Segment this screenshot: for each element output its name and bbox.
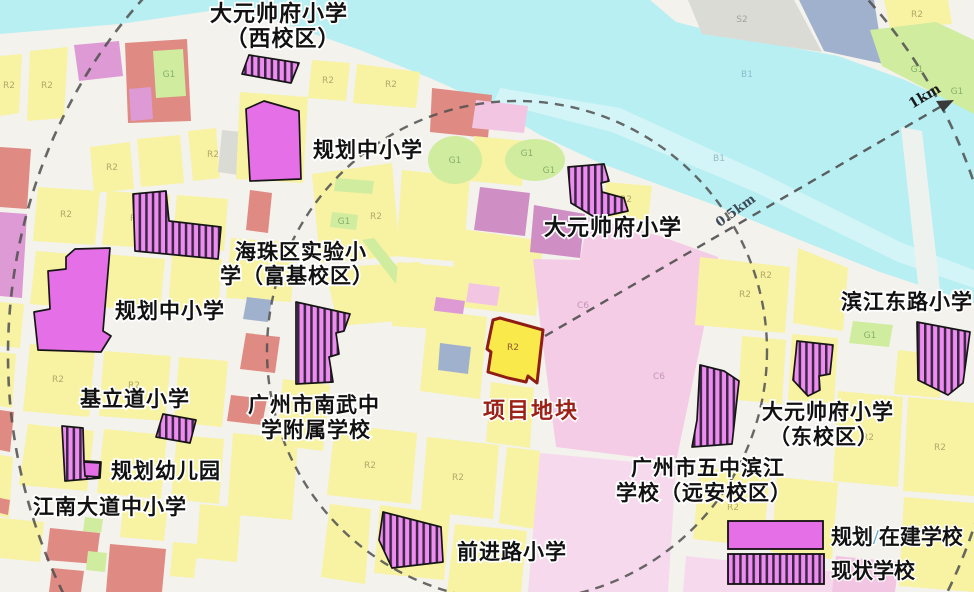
school-label-hzsy-line2: 学（富基校区） <box>220 264 374 288</box>
parcel-code-c6: C6 <box>577 301 589 311</box>
parcel-code-g1: G1 <box>864 331 877 341</box>
school-label-nanwu-line1: 广州市南武中 <box>248 393 380 417</box>
parcel <box>0 518 44 562</box>
school-label-planned-left: 规划中小学 <box>115 299 225 323</box>
parcel-code-r2: R2 <box>207 150 219 160</box>
legend-swatch-existing <box>728 554 824 584</box>
school-label-wuzhong-line2: 学校（远安校区） <box>616 481 792 505</box>
parcel-code-r2: R2 <box>52 375 64 385</box>
parcel <box>196 504 241 562</box>
parcel-code-r2: R2 <box>760 271 772 281</box>
legend-planned-prefix: 规划 <box>831 525 873 549</box>
parcel-code-r2: R2 <box>452 473 464 483</box>
school-label-nanwu-line2: 学附属学校 <box>261 418 371 442</box>
parcel <box>129 87 153 121</box>
legend-swatch-planned <box>728 521 823 549</box>
parcel-code-g1: G1 <box>543 166 556 176</box>
parcel <box>227 433 298 520</box>
legend-label-existing: 现状学校 <box>831 559 916 583</box>
parcel <box>0 302 24 348</box>
parcel-code-r2: R2 <box>739 290 751 300</box>
parcel-code-b1: B1 <box>741 70 753 80</box>
school-label-qianjin: 前进路小学 <box>457 540 567 564</box>
school-polygon-binjiang <box>917 322 970 395</box>
map-canvas: S2R2G1G1B1B1R2R2G1R2R2R2R2R2R2G1R2G1G1G1… <box>0 0 974 592</box>
parcel-code-r2: R2 <box>3 81 15 91</box>
parcel <box>86 551 107 572</box>
parcel-code-r2: R2 <box>364 461 376 471</box>
parcel-code-r2: R2 <box>41 81 53 91</box>
project-plot-code: R2 <box>507 343 519 353</box>
parcel <box>246 190 272 233</box>
school-polygon-planned-kg-annex <box>84 462 100 477</box>
parcel-code-g1: G1 <box>951 87 964 97</box>
parcel-code-r2: R2 <box>322 76 334 86</box>
school-label-wuzhong-line1: 广州市五中滨江 <box>631 456 785 480</box>
school-label-dys-main: 大元帅府小学 <box>544 215 682 240</box>
parcel <box>106 544 166 592</box>
parcel-code-c6: C6 <box>653 372 665 382</box>
school-polygon-jilidao <box>156 414 196 443</box>
school-polygon-wuzhong <box>692 365 739 447</box>
parcel-code-r2: R2 <box>911 10 923 20</box>
school-label-jiangnan: 江南大道中小学 <box>33 495 187 519</box>
school-label-dys-east-line1: 大元帅府小学 <box>762 400 894 424</box>
parcel-code-b1: B1 <box>713 154 725 164</box>
legend-planned-suffix: 在建学校 <box>879 525 964 549</box>
parcel-code-g1: G1 <box>338 217 351 227</box>
parcel <box>738 336 786 404</box>
parcel <box>240 333 280 373</box>
school-label-dys-east-line2: （东校区） <box>769 425 879 449</box>
parcel-code-g1: G1 <box>163 70 176 80</box>
school-label-planned-kg: 规划幼儿园 <box>111 459 221 483</box>
parcel <box>466 283 500 306</box>
parcel <box>243 297 272 322</box>
parcel-code-g1: G1 <box>449 156 462 166</box>
school-label-hzsy-line1: 海珠区实验小 <box>235 240 367 264</box>
legend-label-planned: 规划/在建学校 <box>831 525 964 549</box>
parcel <box>170 542 198 578</box>
project-label: 项目地块 <box>483 398 579 423</box>
parcel-code-r2: R2 <box>934 443 946 453</box>
parcel-code-r2: R2 <box>370 212 382 222</box>
school-label-dys-west-line2: （西校区） <box>225 26 340 51</box>
parcel-code-g1: G1 <box>521 149 534 159</box>
school-label-planned-top: 规划中小学 <box>313 138 423 162</box>
parcel <box>83 517 103 533</box>
parcel-code-r2: R2 <box>385 80 397 90</box>
parcel <box>0 147 31 209</box>
parcel <box>474 187 530 236</box>
parcel-code-r2: R2 <box>106 163 118 173</box>
school-label-dys-west-line1: 大元帅府小学 <box>210 1 348 26</box>
planning-map: S2R2G1G1B1B1R2R2G1R2R2R2R2R2R2G1R2G1G1G1… <box>0 0 974 592</box>
park-parcel <box>505 139 565 181</box>
school-polygon-planned-top <box>246 101 301 181</box>
project-plot: R2 <box>487 318 543 383</box>
parcel <box>137 135 184 187</box>
parcel <box>74 41 123 81</box>
school-label-binjiang: 滨江东路小学 <box>841 290 973 314</box>
parcel <box>438 343 471 374</box>
school-label-jilidao: 基立道小学 <box>80 387 190 411</box>
parcel-code-r2: R2 <box>60 210 72 220</box>
parcel-code-s2: S2 <box>736 15 747 25</box>
